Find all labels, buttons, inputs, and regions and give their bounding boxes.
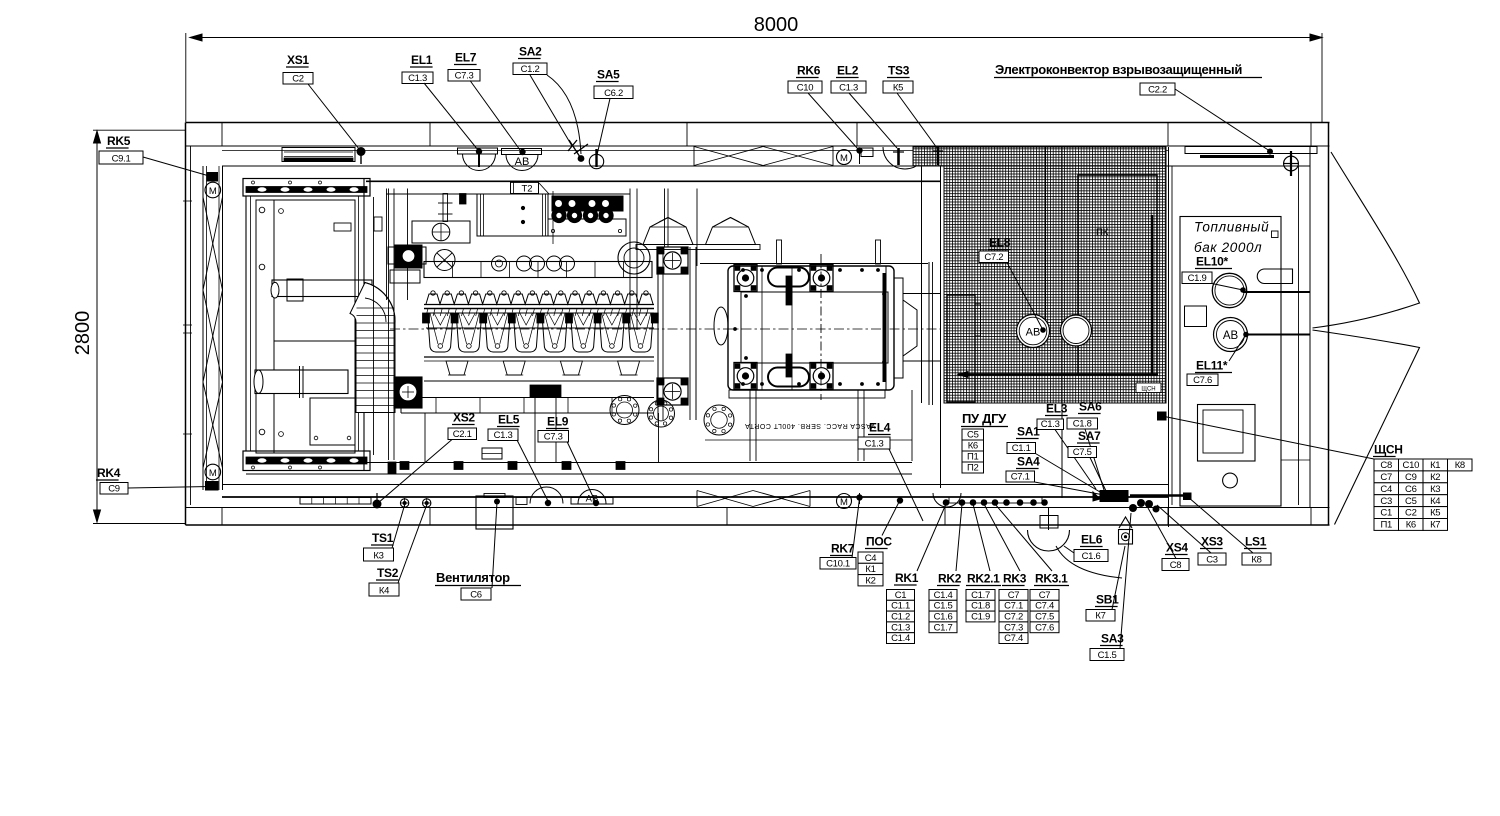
- svg-text:К4: К4: [1430, 496, 1440, 507]
- svg-text:С1.4: С1.4: [934, 590, 953, 601]
- svg-text:RK2: RK2: [938, 571, 962, 585]
- svg-text:К1: К1: [1430, 460, 1440, 471]
- svg-text:Электроконвектор взрывозащище: Электроконвектор взрывозащищенный: [995, 62, 1242, 77]
- svg-text:К5: К5: [1430, 508, 1440, 519]
- svg-text:EL5: EL5: [498, 412, 520, 426]
- svg-text:С1: С1: [895, 590, 907, 601]
- svg-text:RK4: RK4: [97, 466, 121, 480]
- svg-text:EL1: EL1: [411, 53, 433, 67]
- svg-text:К8: К8: [1455, 460, 1465, 471]
- svg-text:С1.5: С1.5: [934, 601, 953, 612]
- svg-text:EL10*: EL10*: [1196, 254, 1228, 268]
- svg-text:SA7: SA7: [1078, 429, 1101, 443]
- svg-text:К6: К6: [968, 441, 978, 452]
- svg-text:EL8: EL8: [989, 235, 1011, 249]
- svg-text:RK5: RK5: [107, 134, 131, 148]
- svg-text:С1.3: С1.3: [408, 73, 427, 84]
- svg-text:К1: К1: [865, 564, 875, 575]
- svg-text:С1.8: С1.8: [1073, 418, 1092, 429]
- svg-text:С3: С3: [1380, 496, 1392, 507]
- svg-text:EL11*: EL11*: [1196, 358, 1228, 372]
- svg-text:С7.3: С7.3: [455, 70, 474, 81]
- svg-text:С7.6: С7.6: [1035, 622, 1054, 633]
- svg-text:ЩСН: ЩСН: [1141, 387, 1155, 393]
- svg-text:С10: С10: [797, 82, 814, 93]
- svg-text:RK2.1: RK2.1: [967, 571, 1000, 585]
- svg-text:С7.5: С7.5: [1035, 612, 1054, 623]
- svg-text:С7: С7: [1008, 590, 1020, 601]
- svg-text:С1.3: С1.3: [839, 82, 858, 93]
- svg-text:XS3: XS3: [1201, 534, 1223, 548]
- svg-text:бак 2000л: бак 2000л: [1194, 240, 1262, 255]
- svg-text:С2: С2: [292, 73, 304, 84]
- svg-text:LS1: LS1: [1245, 534, 1267, 548]
- svg-text:TS3: TS3: [888, 63, 910, 77]
- svg-text:TS2: TS2: [377, 566, 399, 580]
- svg-text:С7.6: С7.6: [1193, 375, 1212, 386]
- svg-text:С1.1: С1.1: [891, 601, 910, 612]
- svg-text:С10: С10: [1403, 460, 1420, 471]
- svg-text:RK7: RK7: [831, 541, 855, 555]
- svg-text:С7.3: С7.3: [1004, 622, 1023, 633]
- svg-text:С1.9: С1.9: [1188, 273, 1207, 284]
- svg-text:С1.2: С1.2: [891, 612, 910, 623]
- svg-text:SA4: SA4: [1017, 454, 1040, 468]
- svg-text:2800: 2800: [72, 311, 94, 356]
- svg-text:EL7: EL7: [455, 50, 477, 64]
- svg-text:M: M: [209, 468, 217, 479]
- svg-text:К7: К7: [1430, 520, 1440, 531]
- svg-text:С7.2: С7.2: [984, 252, 1003, 263]
- svg-text:С9: С9: [108, 483, 120, 494]
- svg-text:С2.1: С2.1: [453, 429, 472, 440]
- svg-text:С1.6: С1.6: [934, 612, 953, 623]
- svg-text:С1.2: С1.2: [521, 64, 540, 75]
- svg-text:С1.3: С1.3: [865, 438, 884, 449]
- svg-text:С6: С6: [1405, 484, 1417, 495]
- svg-text:П1: П1: [967, 452, 979, 463]
- svg-text:К6: К6: [1406, 520, 1416, 531]
- svg-text:С1.3: С1.3: [494, 430, 513, 441]
- svg-text:SA5: SA5: [597, 67, 620, 81]
- svg-text:К5: К5: [893, 82, 903, 93]
- svg-text:С7.3: С7.3: [544, 431, 563, 442]
- svg-text:С9.1: С9.1: [112, 153, 131, 164]
- svg-text:С1.7: С1.7: [971, 590, 990, 601]
- svg-text:К2: К2: [1430, 472, 1440, 483]
- svg-text:С1.7: С1.7: [934, 622, 953, 633]
- svg-text:SA1: SA1: [1017, 424, 1040, 438]
- svg-text:С1.5: С1.5: [1098, 650, 1117, 661]
- svg-text:С7.5: С7.5: [1073, 447, 1092, 458]
- svg-text:ПУ ДГУ: ПУ ДГУ: [962, 411, 1007, 426]
- svg-text:АВ: АВ: [515, 156, 530, 168]
- svg-text:SB1: SB1: [1096, 592, 1119, 606]
- svg-text:П1: П1: [1380, 520, 1392, 531]
- svg-text:ЩСН: ЩСН: [1374, 442, 1403, 456]
- svg-text:К3: К3: [373, 550, 383, 561]
- svg-text:С9: С9: [1405, 472, 1417, 483]
- svg-text:RK3.1: RK3.1: [1035, 571, 1068, 585]
- svg-text:8000: 8000: [754, 14, 799, 36]
- svg-text:VASCA RACC. SERB. 400LT CORTA: VASCA RACC. SERB. 400LT CORTA: [745, 422, 876, 429]
- svg-text:M: M: [209, 186, 217, 197]
- svg-text:С4: С4: [1380, 484, 1392, 495]
- svg-text:ПОС: ПОС: [866, 534, 892, 548]
- svg-text:С6.2: С6.2: [604, 88, 623, 99]
- svg-text:С1.8: С1.8: [971, 601, 990, 612]
- svg-text:К3: К3: [1430, 484, 1440, 495]
- svg-text:XS1: XS1: [287, 53, 309, 67]
- svg-text:С7.4: С7.4: [1035, 601, 1054, 612]
- svg-text:К7: К7: [1095, 610, 1105, 621]
- svg-text:С7.2: С7.2: [1004, 612, 1023, 623]
- svg-text:M: M: [840, 497, 848, 508]
- svg-text:M: M: [840, 153, 848, 164]
- svg-text:EL6: EL6: [1081, 532, 1103, 546]
- svg-text:С1.1: С1.1: [1012, 443, 1031, 454]
- svg-text:С8: С8: [1380, 460, 1392, 471]
- svg-text:К2: К2: [865, 576, 875, 587]
- svg-text:С1: С1: [1380, 508, 1392, 519]
- svg-text:С10.1: С10.1: [826, 558, 850, 569]
- svg-text:С1.6: С1.6: [1082, 551, 1101, 562]
- svg-text:RK3: RK3: [1003, 571, 1027, 585]
- svg-text:ПК: ПК: [1096, 227, 1109, 238]
- svg-text:С7: С7: [1380, 472, 1392, 483]
- svg-text:TS1: TS1: [372, 531, 394, 545]
- svg-text:SA6: SA6: [1079, 399, 1102, 413]
- svg-text:С7: С7: [1039, 590, 1051, 601]
- svg-text:EL3: EL3: [1046, 401, 1068, 415]
- svg-text:С1.3: С1.3: [1041, 419, 1060, 430]
- svg-text:С1.4: С1.4: [891, 633, 910, 644]
- svg-text:С2: С2: [1405, 508, 1417, 519]
- svg-text:С7.1: С7.1: [1011, 471, 1030, 482]
- svg-text:С1.3: С1.3: [891, 622, 910, 633]
- svg-text:EL9: EL9: [547, 414, 569, 428]
- svg-text:SA2: SA2: [519, 44, 542, 58]
- svg-text:АВ: АВ: [1026, 327, 1041, 339]
- svg-text:С5: С5: [1405, 496, 1417, 507]
- svg-text:С7.4: С7.4: [1004, 633, 1023, 644]
- svg-text:Топливный: Топливный: [1194, 220, 1269, 235]
- svg-text:АВ: АВ: [1223, 330, 1239, 342]
- svg-text:П2: П2: [967, 463, 979, 474]
- svg-text:С5: С5: [967, 430, 979, 441]
- svg-text:К8: К8: [1251, 554, 1261, 565]
- svg-text:EL2: EL2: [837, 63, 859, 77]
- svg-text:RK6: RK6: [797, 63, 821, 77]
- svg-text:С3: С3: [1206, 554, 1218, 565]
- svg-text:С7.1: С7.1: [1004, 601, 1023, 612]
- svg-text:XS2: XS2: [453, 410, 475, 424]
- svg-text:С6: С6: [470, 589, 482, 600]
- svg-text:RK1: RK1: [895, 571, 919, 585]
- svg-text:Вентилятор: Вентилятор: [436, 570, 510, 585]
- svg-text:С8: С8: [1170, 560, 1182, 571]
- svg-text:Т2: Т2: [521, 184, 532, 195]
- svg-text:С1.9: С1.9: [971, 612, 990, 623]
- svg-text:С4: С4: [865, 553, 877, 564]
- svg-text:С2.2: С2.2: [1148, 84, 1167, 95]
- svg-text:К4: К4: [379, 585, 389, 596]
